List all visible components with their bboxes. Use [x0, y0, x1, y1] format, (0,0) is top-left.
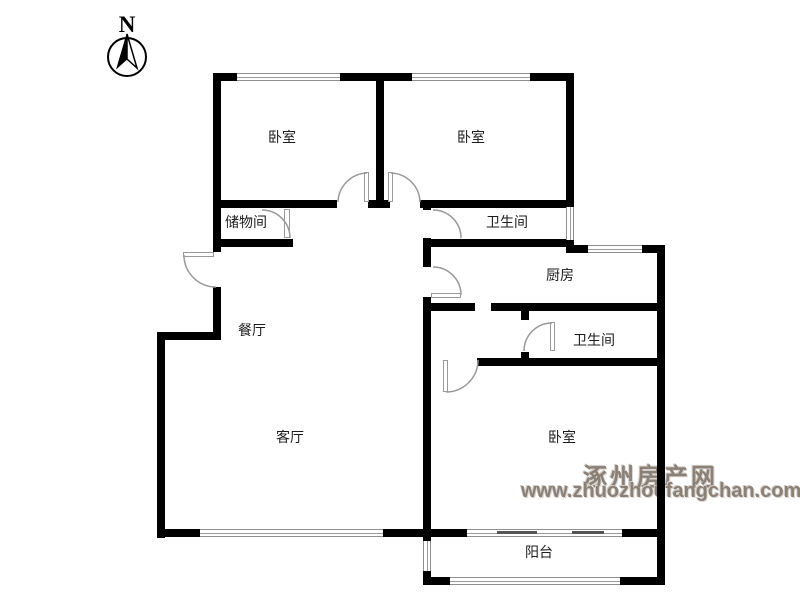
window: [412, 73, 530, 81]
door-arc: [446, 360, 478, 392]
room-label-kitchen: 厨房: [520, 265, 600, 285]
door-leaf: [183, 252, 214, 257]
wall: [423, 238, 431, 267]
door-leaf: [443, 360, 448, 392]
door-arc: [338, 173, 367, 202]
wall: [423, 239, 574, 247]
wall: [622, 529, 665, 537]
wall: [157, 529, 200, 537]
room-label-balcony: 阳台: [499, 542, 579, 562]
wall: [566, 245, 588, 253]
room-label-bedroom1: 卧室: [242, 127, 322, 147]
room-label-living: 客厅: [250, 427, 330, 447]
window: [566, 207, 574, 240]
sliding-door-panel: [497, 531, 537, 534]
wall: [157, 332, 165, 538]
door-arc: [433, 267, 461, 295]
door-leaf: [364, 172, 369, 202]
room-label-bedroom3: 卧室: [522, 427, 602, 447]
door-arc: [433, 210, 461, 238]
wall: [491, 303, 665, 311]
compass-north-label: N: [113, 12, 141, 38]
wall: [423, 297, 431, 529]
room-label-storage: 储物间: [206, 212, 286, 232]
wall: [213, 200, 337, 208]
door-leaf: [431, 293, 461, 298]
north-compass-icon: [108, 34, 146, 76]
floorplan-canvas: 涿州房产网 www.zhuozhoufangchan.com: [0, 0, 800, 600]
wall: [423, 200, 431, 210]
door-arc: [184, 255, 216, 287]
wall: [477, 358, 665, 366]
wall: [213, 239, 293, 247]
window: [588, 245, 642, 253]
door-leaf: [388, 172, 393, 202]
wall: [420, 200, 574, 208]
wall: [423, 529, 467, 537]
window: [237, 73, 340, 81]
door-arc: [524, 323, 552, 351]
door-arc: [391, 173, 420, 202]
sliding-door-panel: [572, 531, 604, 534]
window: [450, 577, 620, 585]
room-label-bedroom2: 卧室: [431, 127, 511, 147]
wall: [566, 73, 574, 207]
wall: [620, 577, 665, 585]
room-label-bathroom2: 卫生间: [554, 330, 634, 350]
wall: [521, 311, 529, 320]
wall: [376, 73, 384, 208]
room-label-bathroom1: 卫生间: [467, 212, 547, 232]
window: [200, 529, 383, 537]
window: [423, 541, 431, 571]
wall: [423, 577, 450, 585]
room-label-dining: 餐厅: [212, 320, 292, 340]
doors-and-compass-overlay: [0, 0, 800, 600]
